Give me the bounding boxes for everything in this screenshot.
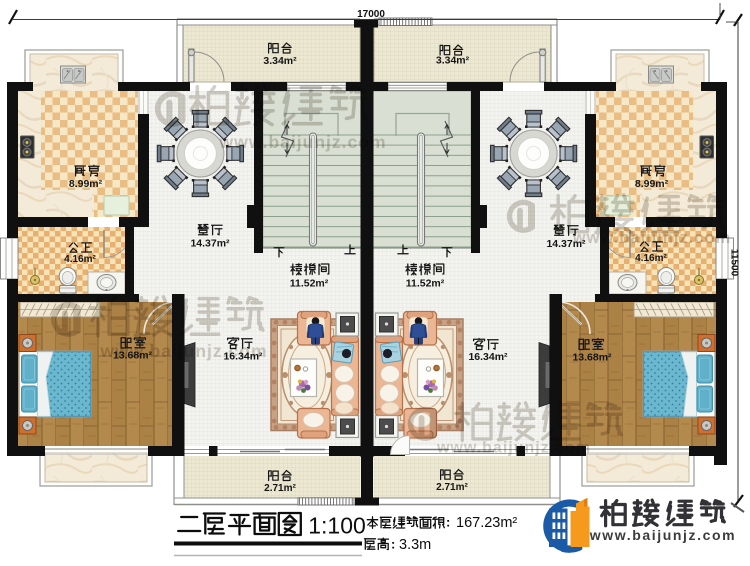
svg-text::: : (391, 536, 395, 551)
svg-text:8.99m²: 8.99m² (69, 178, 103, 190)
svg-text:3.3m: 3.3m (399, 537, 431, 553)
svg-text:www.baijunjz.com: www.baijunjz.com (218, 132, 386, 152)
svg-text:167.23m²: 167.23m² (456, 515, 517, 531)
svg-text::: : (446, 515, 450, 530)
svg-text:www.baijunjz.com: www.baijunjz.com (99, 341, 267, 361)
svg-text:4.16m²: 4.16m² (64, 254, 96, 265)
svg-text:2.71m²: 2.71m² (436, 482, 468, 493)
svg-text:1:100: 1:100 (308, 513, 366, 539)
svg-text:3.34m²: 3.34m² (263, 55, 297, 67)
svg-text:16.34m²: 16.34m² (468, 351, 508, 363)
svg-text:11500: 11500 (729, 249, 740, 277)
svg-text:8.99m²: 8.99m² (635, 178, 669, 190)
svg-text:11.52m²: 11.52m² (290, 278, 329, 290)
svg-text:11.52m²: 11.52m² (406, 278, 445, 290)
svg-text:www.baijunjz.com: www.baijunjz.com (572, 229, 731, 247)
svg-text:3.34m²: 3.34m² (436, 55, 470, 67)
svg-text:www.baijunjz.com: www.baijunjz.com (436, 440, 591, 457)
svg-text:www.baijunjz.com: www.baijunjz.com (589, 527, 736, 543)
svg-text:13.68m²: 13.68m² (572, 352, 612, 364)
svg-text:17000: 17000 (357, 9, 385, 20)
svg-text:4.16m²: 4.16m² (635, 253, 667, 264)
svg-text:14.37m²: 14.37m² (190, 238, 230, 250)
svg-text:2.71m²: 2.71m² (264, 483, 296, 494)
